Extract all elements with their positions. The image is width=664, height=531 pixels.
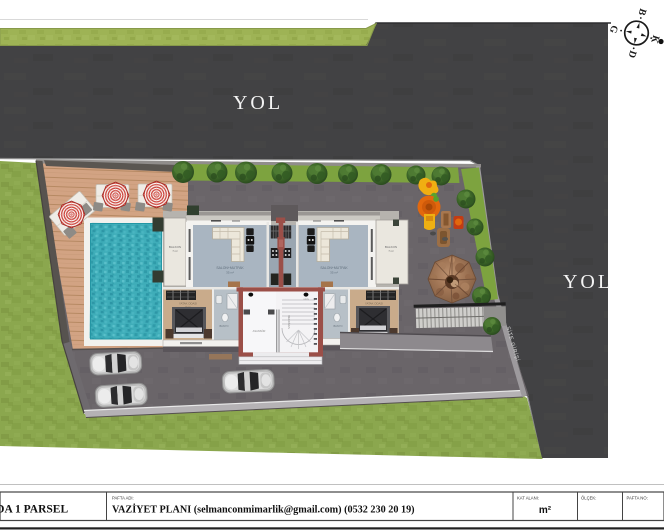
svg-text:YOL: YOL [233, 92, 283, 114]
svg-text:SALON+MUTFAK: SALON+MUTFAK [320, 266, 348, 270]
svg-text:ASANSÖR: ASANSÖR [253, 329, 266, 333]
svg-text:BALKON: BALKON [169, 245, 181, 249]
svg-text:GİRİŞ: GİRİŞ [303, 298, 309, 301]
svg-text:SALON+MUTFAK: SALON+MUTFAK [216, 266, 244, 270]
svg-text:ÖLÇEK:: ÖLÇEK: [581, 496, 596, 501]
svg-text:PAFTA NO:: PAFTA NO: [627, 496, 648, 501]
svg-text:ADA 1 PARSEL: ADA 1 PARSEL [0, 504, 68, 516]
svg-text:BANYO: BANYO [333, 324, 342, 328]
svg-text:m²: m² [539, 505, 552, 516]
svg-text:KAT ALANI:: KAT ALANI: [517, 496, 539, 501]
svg-text:35 m²: 35 m² [330, 270, 338, 274]
svg-text:7 m²: 7 m² [388, 249, 393, 253]
svg-text:VAZİYET PLANI (selmanconmimarl: VAZİYET PLANI (selmanconmimarlik@gmail.c… [112, 504, 415, 516]
svg-text:7 m²: 7 m² [172, 249, 177, 253]
svg-text:BALKON: BALKON [385, 245, 397, 249]
svg-text:YOL: YOL [563, 271, 613, 293]
svg-text:BANYO: BANYO [219, 324, 228, 328]
svg-text:PAFTA ADI:: PAFTA ADI: [112, 496, 134, 501]
svg-text:35 m²: 35 m² [226, 270, 234, 274]
